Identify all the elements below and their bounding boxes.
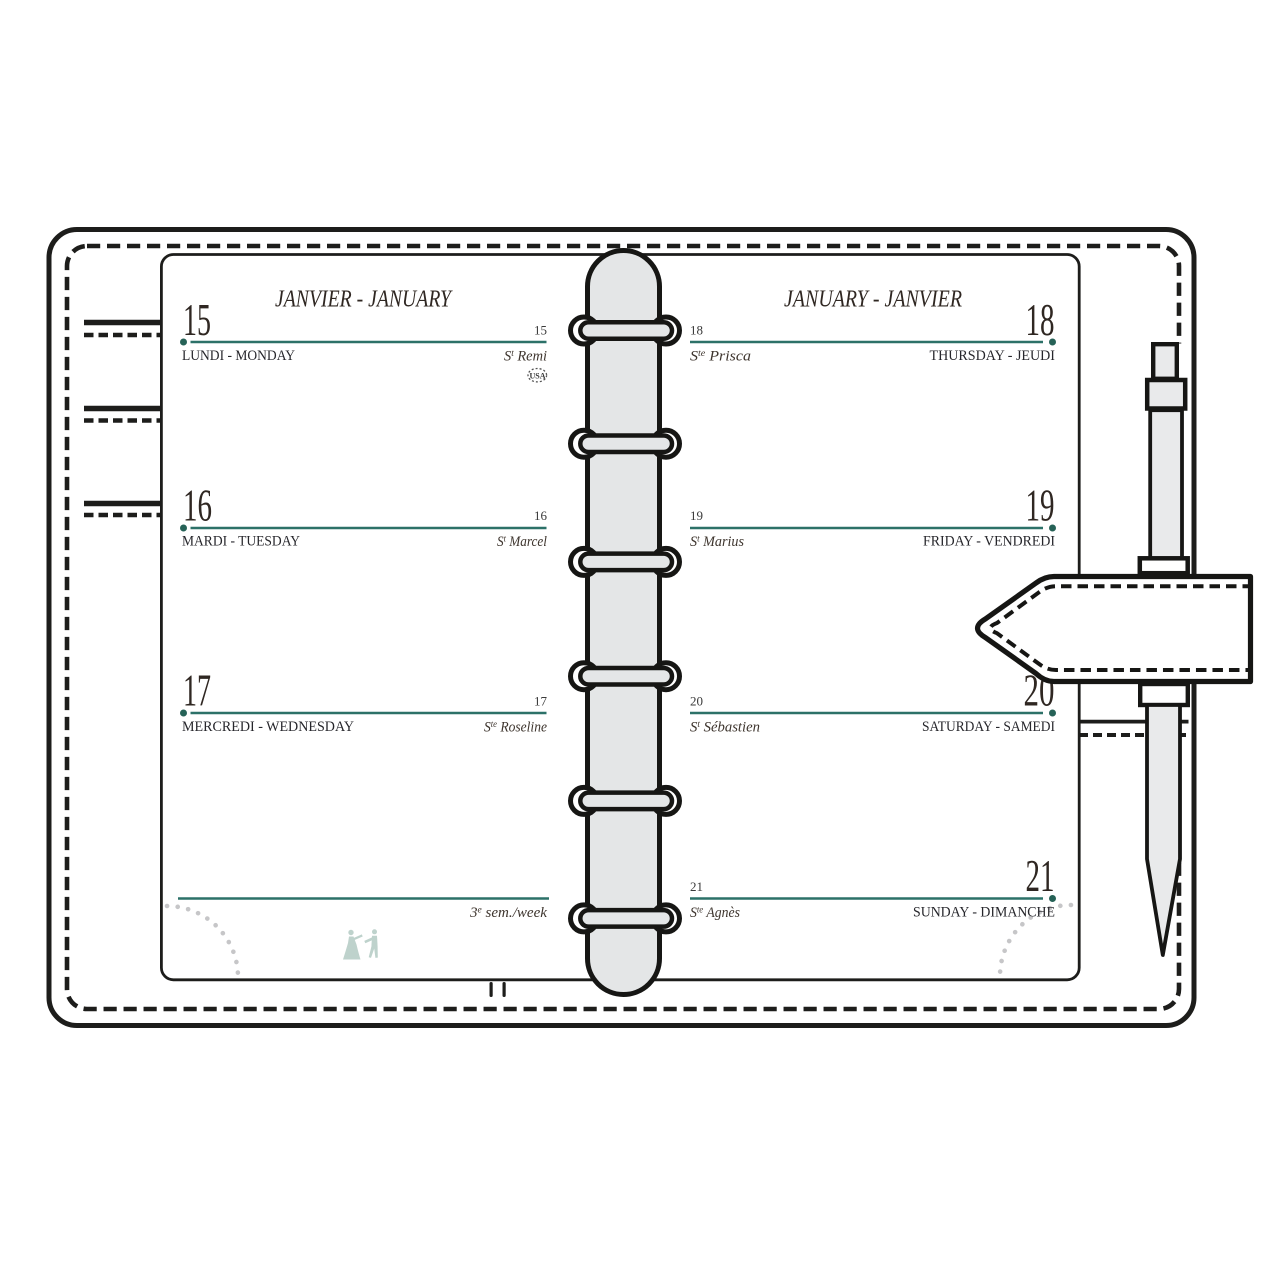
svg-text:SUNDAY - DIMANCHE: SUNDAY - DIMANCHE	[913, 905, 1055, 921]
svg-text:16: 16	[534, 508, 548, 523]
svg-text:18: 18	[690, 322, 703, 337]
svg-text:St Remi: St Remi	[504, 349, 547, 365]
svg-text:18: 18	[1026, 294, 1055, 345]
svg-text:17: 17	[534, 693, 548, 708]
svg-text:16: 16	[183, 480, 212, 531]
svg-text:JANVIER - JANUARY: JANVIER - JANUARY	[275, 287, 453, 313]
svg-text:19: 19	[1026, 480, 1055, 531]
svg-text:SATURDAY - SAMEDI: SATURDAY - SAMEDI	[922, 719, 1055, 735]
svg-text:19: 19	[690, 508, 703, 523]
svg-text:JANUARY - JANVIER: JANUARY - JANVIER	[784, 287, 962, 313]
svg-text:THURSDAY - JEUDI: THURSDAY - JEUDI	[930, 348, 1056, 364]
svg-text:MARDI - TUESDAY: MARDI - TUESDAY	[182, 534, 300, 550]
svg-text:21: 21	[690, 879, 703, 894]
svg-text:20: 20	[690, 693, 703, 708]
svg-text:15: 15	[183, 294, 211, 345]
svg-text:USA: USA	[529, 372, 545, 381]
svg-text:21: 21	[1026, 850, 1055, 901]
svg-text:17: 17	[183, 665, 211, 716]
svg-text:FRIDAY - VENDREDI: FRIDAY - VENDREDI	[923, 534, 1055, 550]
svg-text:St Sébastien: St Sébastien	[690, 720, 760, 736]
svg-text:LUNDI - MONDAY: LUNDI - MONDAY	[182, 348, 295, 364]
svg-text:15: 15	[534, 322, 547, 337]
svg-text:MERCREDI - WEDNESDAY: MERCREDI - WEDNESDAY	[182, 719, 354, 735]
